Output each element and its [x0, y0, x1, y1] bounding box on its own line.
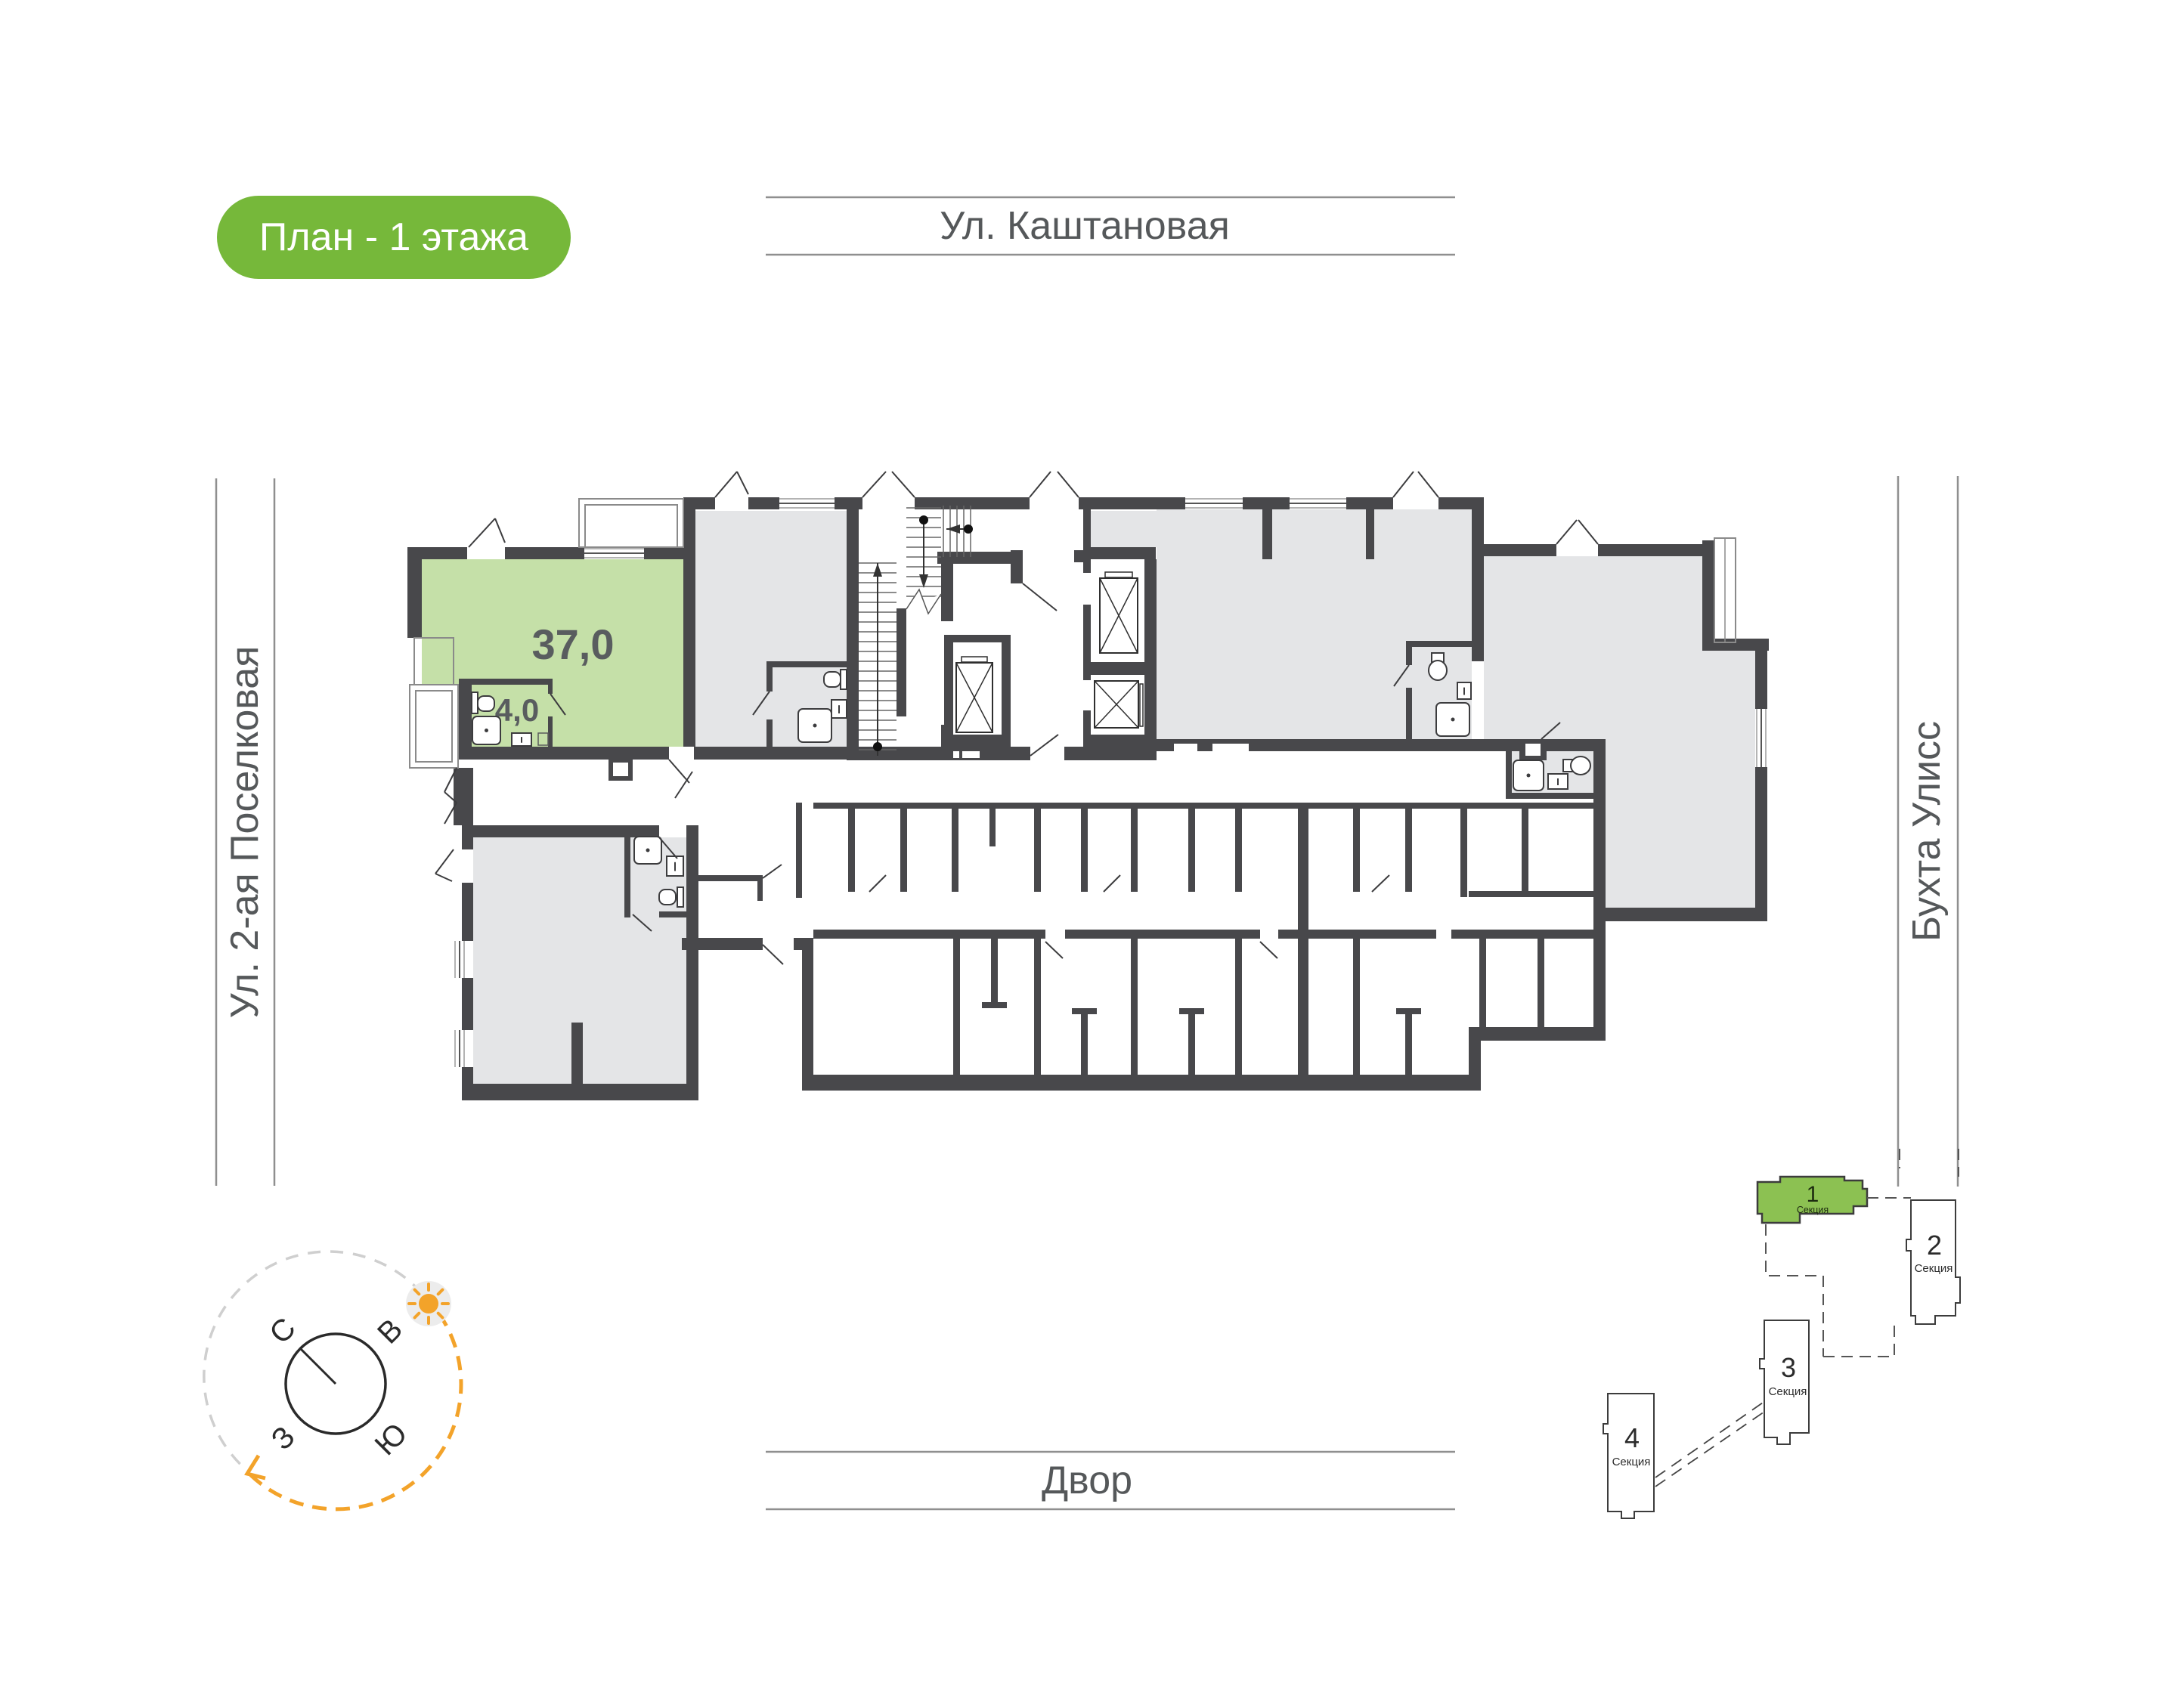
svg-text:Секция: Секция: [1797, 1205, 1829, 1215]
svg-text:Ул. Каштановая: Ул. Каштановая: [940, 204, 1230, 248]
svg-text:План - 1 этажа: План - 1 этажа: [259, 215, 528, 259]
svg-text:2: 2: [1927, 1230, 1942, 1261]
svg-text:4,0: 4,0: [495, 692, 539, 728]
svg-text:Секция: Секция: [1612, 1456, 1651, 1468]
svg-text:Двор: Двор: [1042, 1459, 1132, 1502]
svg-text:4: 4: [1624, 1422, 1640, 1453]
svg-text:37,0: 37,0: [532, 620, 615, 668]
svg-text:Бухта Улисс: Бухта Улисс: [1905, 721, 1949, 942]
svg-text:3: 3: [1781, 1352, 1796, 1383]
svg-text:Секция: Секция: [1915, 1262, 1953, 1275]
svg-text:Секция: Секция: [1769, 1385, 1807, 1398]
svg-text:Ул. 2-ая Поселковая: Ул. 2-ая Поселковая: [223, 646, 267, 1019]
svg-text:1: 1: [1807, 1182, 1819, 1207]
